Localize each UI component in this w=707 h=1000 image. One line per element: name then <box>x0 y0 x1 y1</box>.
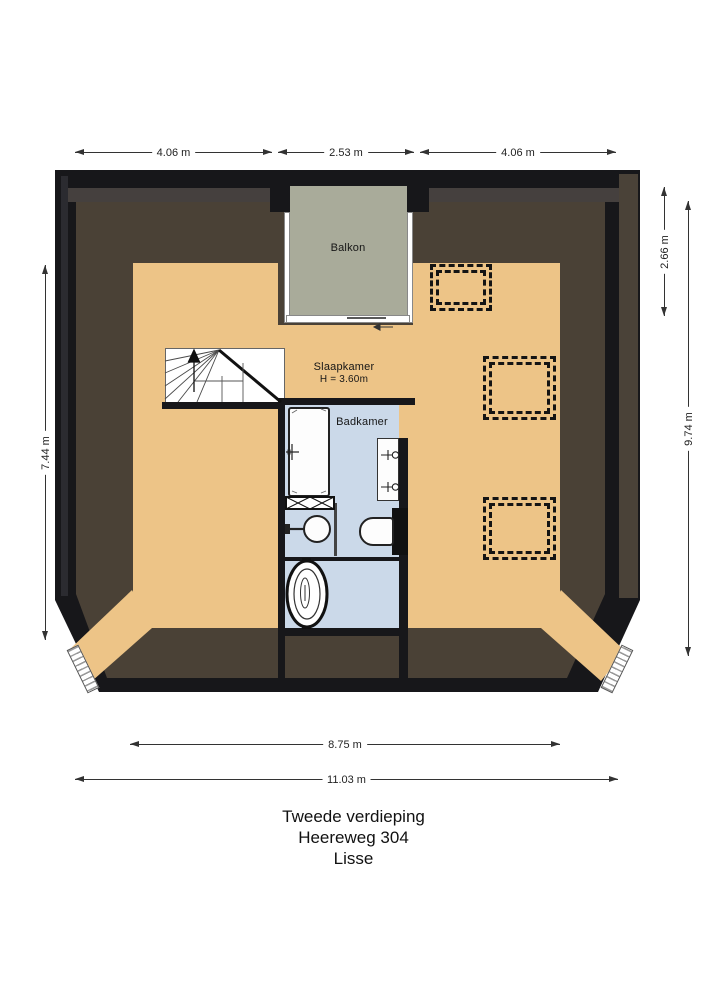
roof-window-1-inner <box>436 270 486 305</box>
balcony-wall-stub-left <box>270 170 290 212</box>
bedroom-floor-left <box>133 263 278 628</box>
dim-bottom-total-width-label: 11.03 m <box>322 774 371 786</box>
dim-bottom-total-width: 11.03 m <box>75 779 618 780</box>
roof-window-2 <box>483 356 556 420</box>
bedroom-floor-right <box>413 263 560 628</box>
dim-right-balcony-depth: 2.66 m <box>664 187 665 316</box>
bathroom-wall-top <box>278 398 415 405</box>
staircase <box>165 348 285 402</box>
dim-left-height: 7.44 m <box>45 265 46 640</box>
balcony-railing-left <box>284 212 290 323</box>
floor-plan: Balkon Slaapkamer H = 3.60m Badkamer 4.0… <box>0 0 707 1000</box>
dim-top-right-label: 4.06 m <box>496 147 540 159</box>
dim-bottom-inner-width: 8.75 m <box>130 744 560 745</box>
floorplan-page: { "title": { "line1": "Tweede verdieping… <box>0 0 707 1000</box>
glass-partition <box>334 503 337 556</box>
staircase-bottom-wall <box>162 402 292 409</box>
dim-bottom-inner-width-label: 8.75 m <box>323 739 367 751</box>
title-block: Tweede verdieping Heereweg 304 Lisse <box>0 806 707 869</box>
dim-top-left-label: 4.06 m <box>152 147 196 159</box>
roof-window-1 <box>430 264 492 311</box>
dim-top-left: 4.06 m <box>75 152 272 153</box>
wall-band-right <box>619 174 638 598</box>
title-address: Heereweg 304 <box>0 827 707 848</box>
dim-right-total-height-label: 9.74 m <box>683 407 695 451</box>
toilet-bowl <box>359 517 394 546</box>
toilet-cistern <box>392 508 408 555</box>
dim-top-middle-label: 2.53 m <box>324 147 368 159</box>
bedroom-height-note: H = 3.60m <box>320 374 368 385</box>
bathroom-wall-left <box>278 398 285 678</box>
dim-right-total-height: 9.74 m <box>688 201 689 656</box>
bedroom-label: Slaapkamer <box>314 361 375 373</box>
dim-top-right: 4.06 m <box>420 152 616 153</box>
bathroom-wall-bottom <box>278 628 408 636</box>
roof-window-3 <box>483 497 556 560</box>
roof-window-2-inner <box>489 362 550 414</box>
title-city: Lisse <box>0 848 707 869</box>
balcony-railing-right <box>407 212 413 323</box>
bathroom-label: Badkamer <box>336 416 388 428</box>
balcony-label: Balkon <box>331 242 366 254</box>
wall-shade-left <box>61 176 68 596</box>
roof-window-3-inner <box>489 503 550 554</box>
sink-vanity <box>377 438 399 501</box>
balcony-wall-stub-right <box>405 170 429 212</box>
title-floor: Tweede verdieping <box>0 806 707 827</box>
balcony-sliding-door <box>286 315 410 323</box>
balcony-floor <box>290 186 407 322</box>
dim-top-middle: 2.53 m <box>278 152 414 153</box>
bathroom-wall-right <box>399 438 408 678</box>
dim-left-height-label: 7.44 m <box>40 431 52 475</box>
bathroom-wall-middle <box>285 557 399 561</box>
bathtub <box>288 407 330 497</box>
dim-right-balcony-depth-label: 2.66 m <box>659 230 671 274</box>
